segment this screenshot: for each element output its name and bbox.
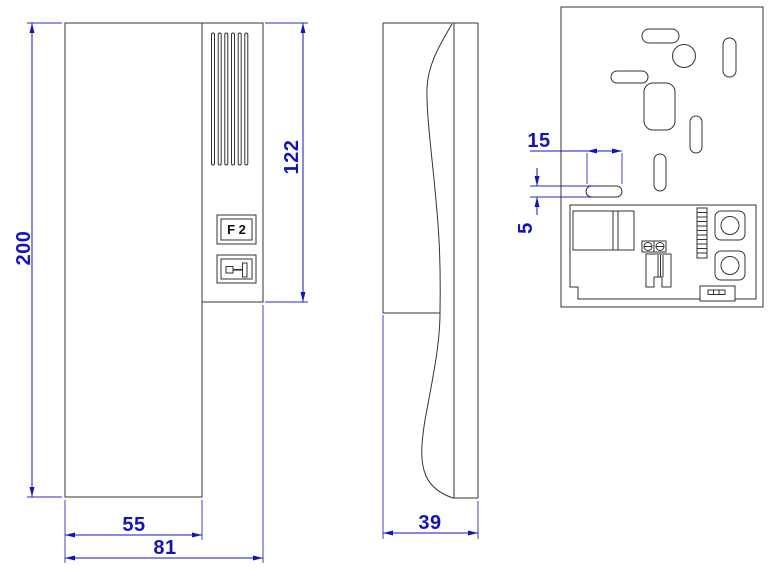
bell-button-upper bbox=[715, 211, 745, 240]
dim-label-81: 81 bbox=[153, 537, 176, 559]
dim-front-width-81: 81 bbox=[65, 305, 263, 563]
dim-label-55: 55 bbox=[122, 514, 145, 536]
plate-cutouts bbox=[586, 29, 736, 197]
front-outline bbox=[65, 23, 263, 497]
dim-front-width-55: 55 bbox=[65, 500, 202, 563]
side-view bbox=[383, 23, 478, 498]
back-view bbox=[561, 7, 763, 307]
speaker-grille-icon bbox=[212, 33, 248, 165]
bottom-connector-detail bbox=[700, 286, 735, 301]
keyhole-slot bbox=[586, 186, 622, 197]
hook-switch-block bbox=[573, 211, 634, 250]
screw-head-icon bbox=[644, 243, 652, 251]
dim-back-slot-height-5: 5 bbox=[515, 168, 601, 234]
handset-profile-curve bbox=[422, 24, 453, 498]
dim-label-5: 5 bbox=[515, 222, 537, 234]
plate-lower-assembly bbox=[570, 205, 756, 301]
technical-drawing-page: F 2 200 122 5 bbox=[0, 0, 780, 569]
bell-button-lower bbox=[715, 251, 745, 280]
f2-button: F 2 bbox=[217, 215, 256, 244]
key-icon bbox=[226, 263, 247, 277]
dim-label-15: 15 bbox=[527, 130, 550, 152]
screw-head-icon bbox=[656, 243, 664, 251]
technical-drawing-canvas: F 2 200 122 5 bbox=[0, 0, 780, 569]
dim-side-depth-39: 39 bbox=[383, 315, 478, 539]
screw-terminal-block bbox=[642, 241, 666, 252]
f2-button-label: F 2 bbox=[227, 222, 246, 237]
dim-front-panel-122: 122 bbox=[265, 23, 308, 302]
dim-label-122: 122 bbox=[281, 140, 303, 175]
dim-back-slot-width-15: 15 bbox=[527, 130, 622, 184]
front-view: F 2 bbox=[65, 23, 263, 497]
dim-label-200: 200 bbox=[13, 231, 35, 266]
door-open-button bbox=[217, 255, 256, 283]
dim-front-height-200: 200 bbox=[13, 23, 62, 497]
dim-label-39: 39 bbox=[418, 512, 441, 534]
connector-block bbox=[646, 254, 671, 287]
volume-rack-detail bbox=[697, 208, 707, 258]
